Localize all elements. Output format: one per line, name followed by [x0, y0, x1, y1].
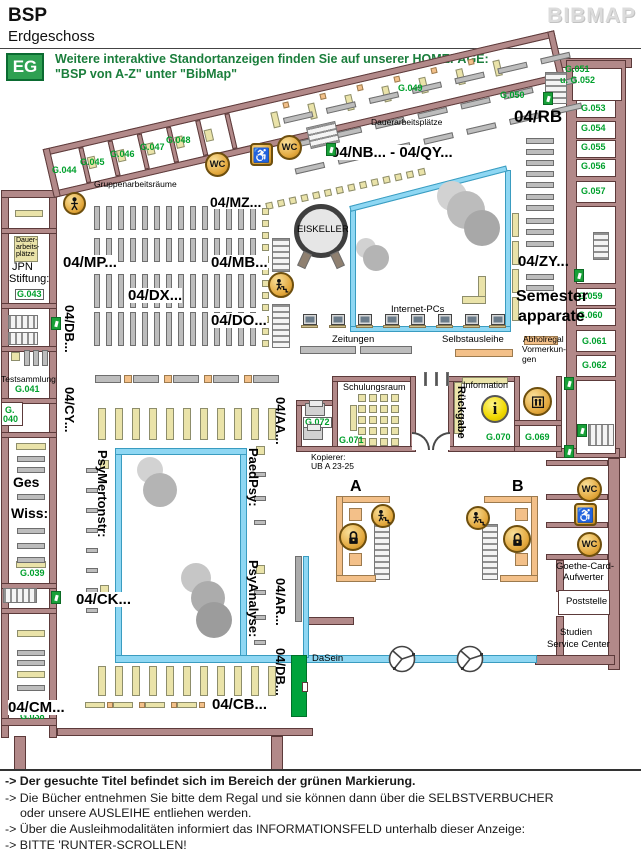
display-shelf	[244, 375, 252, 383]
room-number-label: G.046	[110, 150, 135, 159]
shelf-range-label: 04/CK...	[76, 592, 131, 607]
book-shelf	[526, 229, 554, 235]
area-label: gen	[522, 355, 536, 364]
emergency-exit-icon	[326, 143, 336, 156]
area-label: Testsammlung	[1, 375, 56, 384]
shelf	[177, 702, 197, 708]
book-shelf	[238, 274, 244, 308]
eiskeller-label: EISKELLER	[297, 225, 349, 235]
staircase-frame	[515, 553, 528, 566]
book-shelf	[178, 206, 184, 230]
shelf-range-label: 04/CY...	[63, 387, 76, 433]
book-shelf	[115, 408, 123, 440]
wall	[224, 113, 237, 149]
shelf-range-label: 04/DO...	[211, 313, 267, 328]
compact-shelving	[588, 424, 614, 446]
book-shelf	[202, 274, 208, 308]
chair	[369, 416, 377, 424]
tree	[464, 210, 500, 246]
shelf	[17, 660, 45, 666]
area-label: Service Center	[547, 640, 610, 650]
shelf-range-label: apparate	[518, 309, 585, 325]
room-number-label: G.053	[581, 104, 606, 113]
book-shelf	[115, 666, 123, 696]
information-icon: i	[481, 395, 509, 423]
area-label: Schulungsraum	[343, 383, 406, 392]
locker	[300, 194, 308, 202]
shelf	[17, 456, 45, 462]
shelf-range-label: 04/MP...	[63, 255, 117, 270]
book-shelf	[217, 408, 225, 440]
shelf-range-label: Wiss:	[11, 506, 48, 520]
book-shelf	[166, 312, 172, 346]
tree	[143, 473, 177, 507]
locker	[262, 244, 269, 251]
door-frame	[435, 372, 438, 386]
glass-wall	[505, 170, 511, 332]
display-shelf	[133, 375, 159, 383]
emergency-exit-icon	[51, 591, 61, 604]
locker	[418, 168, 426, 176]
locker	[336, 186, 344, 194]
chair	[358, 427, 366, 435]
chair	[467, 58, 474, 65]
locker	[324, 189, 332, 197]
compact-shelving	[3, 588, 37, 603]
book-shelf	[142, 238, 148, 262]
area-label: plätze	[16, 251, 35, 258]
lock-icon	[339, 523, 367, 551]
chair	[380, 427, 388, 435]
stairs	[374, 524, 390, 580]
tree	[363, 245, 389, 271]
room-number-label: G.069	[525, 433, 550, 442]
chair	[358, 416, 366, 424]
book-shelf	[98, 408, 106, 440]
locker	[262, 340, 269, 347]
book-shelf	[94, 274, 100, 308]
internet-pc-icon	[383, 314, 400, 328]
staircase-frame	[349, 553, 362, 566]
wc-icon: WC	[277, 135, 302, 160]
footer-line: -> Der gesuchte Titel befindet sich im B…	[5, 774, 415, 788]
wall	[1, 608, 57, 614]
copier-icon	[303, 427, 323, 440]
book-shelf	[118, 238, 124, 262]
chair	[380, 405, 388, 413]
book-shelf	[118, 206, 124, 230]
floor-plan: GruppenarbeitsräumeDauerarbeitsplätzeEIS…	[0, 0, 641, 770]
footer-line: oder unsere AUSLEIHE entliehen werden.	[20, 806, 251, 820]
shelf	[254, 640, 266, 645]
shelf-range-label: 04/RB	[514, 108, 562, 125]
area-label: Poststelle	[566, 597, 607, 607]
area-label: Information	[463, 381, 508, 390]
shelf	[295, 162, 326, 175]
shelf	[113, 702, 133, 708]
marked-shelf-label: 04/DB...	[274, 648, 287, 696]
staircase-frame	[336, 575, 376, 582]
book-shelf	[202, 238, 208, 262]
shelf	[17, 543, 45, 549]
book-shelf	[154, 238, 160, 262]
shelf-range-label: 04/CB...	[212, 697, 267, 712]
shelf-range-label: 04/DB...	[63, 305, 76, 353]
locker	[262, 304, 269, 311]
book-shelf	[130, 238, 136, 262]
shelf	[107, 702, 113, 708]
book-shelf	[234, 408, 242, 440]
shelf	[17, 467, 45, 473]
book-shelf	[190, 274, 196, 308]
internet-pc-icon	[301, 314, 318, 328]
book-shelf	[149, 408, 157, 440]
internet-pc-icon	[356, 314, 373, 328]
room-number-label: G.049	[398, 84, 423, 93]
door-frame	[424, 372, 427, 386]
staircase-frame	[336, 496, 390, 503]
book-shelf	[526, 194, 554, 200]
book-shelf	[106, 274, 112, 308]
entrance-door	[432, 432, 450, 450]
door-frame	[446, 372, 449, 386]
book-shelf	[166, 408, 174, 440]
chair	[369, 394, 377, 402]
shelf	[33, 350, 39, 366]
shelf	[17, 685, 45, 691]
locker	[262, 232, 269, 239]
shelf-range-label: 04/MB...	[211, 255, 268, 270]
revolving-door-icon	[387, 644, 417, 674]
wall	[546, 460, 608, 466]
room-number-label: u. G.052	[560, 76, 595, 85]
shelf-range-label: 04/NB... - 04/QY...	[331, 145, 453, 160]
book-shelf	[526, 241, 554, 247]
locker	[359, 181, 367, 189]
wall	[296, 400, 302, 452]
shelf-range-label: 04/CM...	[8, 700, 65, 715]
elevator-icon	[523, 387, 552, 416]
shelf-range-label: 04/AA...	[274, 397, 287, 445]
shelf	[326, 101, 357, 114]
wall	[1, 303, 57, 309]
room-number-label: G.047	[140, 143, 165, 152]
stairs	[593, 232, 609, 260]
tree	[196, 602, 232, 638]
book-shelf	[200, 666, 208, 696]
book-shelf	[214, 274, 220, 308]
area-label: Stiftung:	[9, 274, 49, 285]
shelf	[145, 702, 165, 708]
furniture	[17, 671, 45, 678]
book-shelf	[226, 274, 232, 308]
wall	[556, 376, 562, 452]
shelf-range-label: PsyMertonstr:	[96, 450, 109, 537]
chair	[369, 438, 377, 446]
staircase-frame	[484, 496, 538, 503]
area-label: UB A 23-25	[311, 462, 354, 471]
chair	[391, 438, 399, 446]
room-number-label: G.070	[486, 433, 511, 442]
room-number-label: G.048	[166, 136, 191, 145]
desk	[204, 129, 215, 143]
book-shelf	[106, 312, 112, 346]
book-shelf	[250, 274, 256, 308]
lock-icon	[503, 525, 531, 553]
stairs	[272, 238, 290, 272]
stairs	[482, 524, 498, 580]
book-shelf	[118, 274, 124, 308]
eiskeller-leg	[297, 251, 312, 269]
room-number-label: 040	[3, 415, 18, 424]
room-number-label: G.039	[20, 569, 45, 578]
room-number-label: G.055	[581, 143, 606, 152]
book-shelf	[526, 171, 554, 177]
book-shelf	[94, 312, 100, 346]
chair	[391, 416, 399, 424]
shelf	[283, 111, 314, 124]
entrance-door	[412, 432, 430, 450]
wall	[271, 736, 283, 770]
wc-icon: WC	[205, 152, 230, 177]
shelf	[199, 702, 205, 708]
locker	[394, 173, 402, 181]
emergency-exit-icon	[564, 445, 574, 458]
shelf	[24, 350, 30, 366]
book-shelf	[526, 138, 554, 144]
stairs-up-icon	[268, 272, 294, 298]
display-shelf	[204, 375, 212, 383]
accessible-wc-icon: ♿	[574, 503, 597, 526]
wall	[514, 420, 562, 426]
furniture	[11, 352, 20, 361]
book-shelf	[130, 206, 136, 230]
display-shelf	[213, 375, 239, 383]
book-shelf	[526, 160, 554, 166]
room-number-label: G.050	[500, 91, 525, 100]
book-shelf	[190, 238, 196, 262]
book-shelf	[251, 408, 259, 440]
baby-changing-icon	[63, 192, 86, 215]
area-label: Dauerarbeitsplätze	[371, 118, 442, 127]
chair	[369, 427, 377, 435]
revolving-door-icon	[455, 644, 485, 674]
staircase-b-label: B	[512, 479, 524, 495]
emergency-exit-icon	[564, 377, 574, 390]
wall	[535, 655, 615, 665]
area-label: Abholregal	[523, 335, 564, 344]
book-shelf	[130, 312, 136, 346]
emergency-exit-icon	[577, 424, 587, 437]
display-shelf	[173, 375, 199, 383]
room-number-label: G.061	[582, 337, 607, 346]
book-shelf	[166, 666, 174, 696]
area-label: JPN	[12, 262, 33, 273]
locker	[406, 170, 414, 178]
book-shelf	[166, 238, 172, 262]
shelf	[466, 122, 497, 135]
area-label: arbeits-	[16, 244, 39, 251]
lectern	[350, 405, 357, 431]
compact-shelving	[8, 315, 38, 329]
locker	[262, 328, 269, 335]
room-number-label: G.062	[582, 361, 607, 370]
staircase-frame	[531, 496, 538, 582]
wall	[514, 376, 520, 452]
book-shelf	[202, 206, 208, 230]
book-shelf	[526, 205, 554, 211]
shelf	[497, 62, 528, 75]
room-number-label: G.045	[80, 158, 105, 167]
book-shelf	[106, 206, 112, 230]
book-shelf	[251, 666, 259, 696]
internet-pc-icon	[463, 314, 480, 328]
wall	[514, 446, 562, 452]
area-label: Gruppenarbeitsräume	[94, 180, 177, 189]
locker	[371, 178, 379, 186]
shelf-range-label: 04/MZ...	[210, 195, 261, 209]
shelf	[86, 608, 98, 613]
copier-icon	[305, 403, 325, 416]
book-shelf	[132, 666, 140, 696]
wall	[49, 190, 57, 738]
internet-pc-icon	[409, 314, 426, 328]
display-shelf	[253, 375, 279, 383]
room-number-label: G.057	[581, 187, 606, 196]
stairs	[272, 304, 290, 348]
area-label: Goethe-Card-	[556, 562, 614, 572]
footer-line: -> Die Bücher entnehmen Sie bitte dem Re…	[5, 791, 554, 805]
locker	[347, 183, 355, 191]
area-label: Aufwerter	[563, 573, 604, 583]
footer-line: -> BITTE 'RUNTER-SCROLLEN!	[5, 838, 187, 852]
display-shelf	[164, 375, 172, 383]
wall	[448, 446, 520, 452]
book-shelf	[183, 408, 191, 440]
book-shelf	[526, 274, 554, 280]
book-shelf	[190, 206, 196, 230]
shelf-range-label: Rückgabe	[455, 386, 466, 439]
wall	[1, 432, 57, 438]
furniture	[15, 210, 43, 217]
wall	[308, 617, 354, 625]
shelf	[540, 52, 571, 65]
internet-pc-icon	[436, 314, 453, 328]
shelf	[369, 91, 400, 104]
shelf-range-label: 04/ZY...	[518, 254, 569, 269]
accessible-wc-icon: ♿	[250, 143, 273, 166]
book-shelf	[200, 408, 208, 440]
wall	[57, 728, 313, 736]
display-shelf	[124, 375, 132, 383]
glass-wall	[303, 556, 309, 658]
emergency-exit-icon	[51, 317, 61, 330]
locker	[289, 196, 297, 204]
book-shelf	[149, 666, 157, 696]
staircase-frame	[349, 508, 362, 521]
area-label: Studien	[560, 628, 592, 638]
locker	[262, 220, 269, 227]
wall	[1, 190, 9, 738]
room-number-label: G.043	[15, 289, 44, 300]
shelf-range-label: 04/DX...	[128, 288, 182, 303]
locker	[382, 176, 390, 184]
staircase-frame	[500, 575, 538, 582]
shelf	[86, 548, 98, 553]
locker	[262, 292, 269, 299]
emergency-exit-icon	[574, 269, 584, 282]
room-number-label: G.071	[339, 436, 364, 445]
book-shelf	[178, 238, 184, 262]
shelf	[454, 72, 485, 85]
book-shelf	[234, 666, 242, 696]
book-shelf	[217, 666, 225, 696]
door-gap	[302, 682, 308, 692]
book-shelf	[142, 312, 148, 346]
furniture	[17, 630, 45, 637]
glass-wall	[115, 448, 122, 662]
display-shelf	[95, 375, 121, 383]
room-number-label: G.054	[581, 124, 606, 133]
counter	[512, 213, 519, 237]
chair	[391, 394, 399, 402]
shelf-range-label: 04/AR...	[274, 578, 287, 626]
compact-shelving	[8, 332, 38, 345]
footer-line: -> Über die Ausleihmodalitäten informier…	[5, 822, 525, 836]
book-shelf	[154, 206, 160, 230]
stairs-up-icon	[371, 504, 395, 528]
eiskeller-leg	[330, 251, 345, 269]
book-shelf	[526, 182, 554, 188]
staircase-a-label: A	[350, 479, 362, 495]
shelf	[171, 702, 177, 708]
book-shelf	[183, 666, 191, 696]
room-number-label: G.056	[581, 162, 606, 171]
area-label: Selbstausleihe	[442, 335, 504, 345]
stairs-up-icon	[466, 506, 490, 530]
book-shelf	[526, 218, 554, 224]
book-shelf	[178, 312, 184, 346]
display-shelf	[360, 346, 412, 354]
book-shelf	[118, 312, 124, 346]
room-number-label: G.051	[565, 65, 590, 74]
book-shelf	[98, 666, 106, 696]
wall	[332, 376, 338, 452]
shelf	[139, 702, 145, 708]
room-number-label: G.041	[15, 385, 40, 394]
book-shelf	[202, 312, 208, 346]
area-label: Vormerkun-	[522, 345, 566, 354]
area-label: DaSein	[312, 654, 343, 664]
shelf	[86, 568, 98, 573]
glass-wall	[350, 326, 511, 332]
book-shelf	[142, 206, 148, 230]
chair	[380, 438, 388, 446]
shelf	[17, 494, 45, 500]
display-shelf	[455, 349, 513, 357]
wall	[14, 736, 26, 770]
furniture	[16, 443, 46, 450]
bibmap-page: BSP Erdgeschoss BIBMAP EG Weitere intera…	[0, 0, 641, 856]
locker	[312, 191, 320, 199]
wall	[295, 556, 302, 622]
chair	[391, 405, 399, 413]
book-shelf	[132, 408, 140, 440]
area-label: Zeitungen	[332, 335, 374, 345]
shelf	[423, 132, 454, 145]
emergency-exit-icon	[543, 92, 553, 105]
shelf	[17, 650, 45, 656]
